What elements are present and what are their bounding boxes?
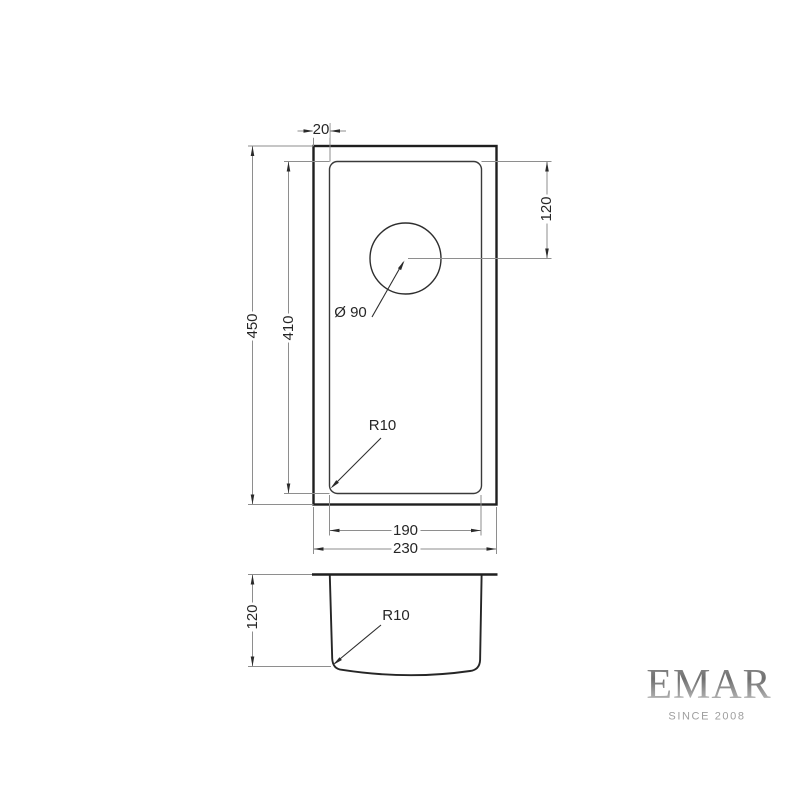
arrowhead (251, 495, 255, 505)
dim-label-depth: 120 (244, 602, 261, 631)
dim-label-overall-length: 450 (244, 311, 261, 340)
dim-label-drain-offset: 120 (539, 194, 556, 223)
brand-tagline: SINCE 2008 (668, 712, 745, 723)
arrowhead (398, 261, 405, 271)
bowl-inner-rect (330, 162, 482, 494)
top-view (314, 146, 497, 505)
arrowhead (287, 162, 291, 172)
dim-label-top-corner-radius: R10 (367, 417, 399, 434)
arrowhead (471, 529, 481, 533)
outer-rim-rect (314, 146, 497, 505)
dim-label-top-flange: 20 (313, 121, 330, 138)
arrowhead (251, 146, 255, 156)
brand-wordmark: EMAR (646, 664, 771, 706)
leader-drain-diameter (372, 261, 405, 318)
arrowhead (251, 575, 255, 585)
dim-label-side-corner-radius: R10 (380, 607, 412, 624)
leader-top-corner-radius (331, 438, 382, 489)
dim-label-bowl-length: 410 (280, 313, 297, 342)
dim-label-drain-diameter: Ø 90 (332, 304, 369, 321)
arrowhead (314, 547, 324, 551)
arrowhead (487, 547, 497, 551)
arrowhead (545, 162, 549, 172)
leader-side-corner-radius (333, 625, 381, 665)
arrowhead (287, 484, 291, 494)
arrowhead (251, 657, 255, 667)
dim-label-bowl-width: 190 (391, 522, 420, 539)
dim-label-overall-width: 230 (391, 541, 420, 558)
drawing-canvas: 20 450 410 120 Ø 90 R10 190 230 120 R10 … (0, 0, 800, 800)
arrowhead (545, 249, 549, 259)
bowl-section-outline (330, 576, 482, 676)
arrowhead (330, 129, 340, 133)
dim-drain-offset (408, 162, 552, 259)
arrowhead (330, 529, 340, 533)
